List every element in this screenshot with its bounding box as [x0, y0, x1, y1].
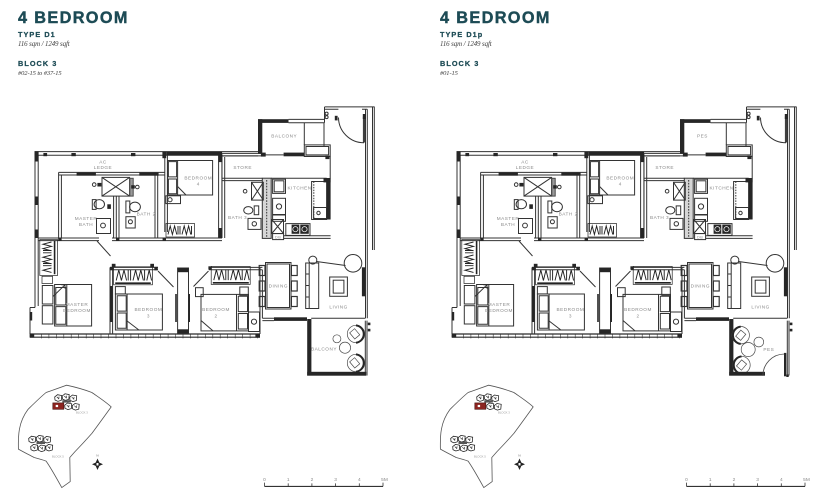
svg-text:PES: PES: [697, 134, 708, 139]
svg-text:BALCONY: BALCONY: [311, 347, 337, 352]
svg-text:BALCONY: BALCONY: [271, 134, 297, 139]
svg-text:PES: PES: [763, 347, 774, 352]
